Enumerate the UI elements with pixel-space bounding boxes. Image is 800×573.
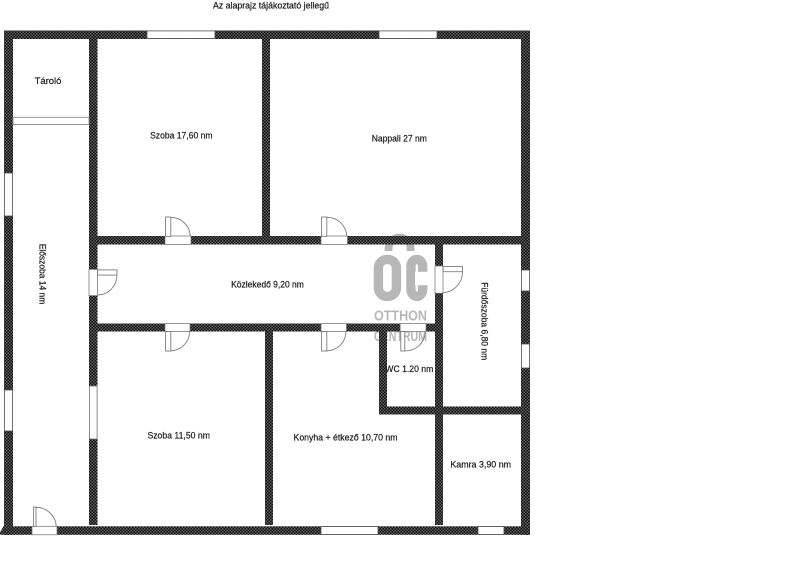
svg-text:Előszoba 14 nm: Előszoba 14 nm (37, 244, 48, 305)
svg-text:Szoba 11,50 nm: Szoba 11,50 nm (147, 431, 210, 442)
svg-text:Közlekedő 9,20 nm: Közlekedő 9,20 nm (231, 280, 304, 291)
svg-text:Kamra 3,90 nm: Kamra 3,90 nm (450, 460, 511, 471)
svg-text:Szoba 17,60 nm: Szoba 17,60 nm (150, 130, 212, 141)
svg-text:WC 1.20 nm: WC 1.20 nm (385, 364, 433, 375)
svg-text:Konyha + étkező 10,70 nm: Konyha + étkező 10,70 nm (294, 432, 398, 443)
svg-text:Tároló: Tároló (35, 76, 62, 87)
svg-text:OTTHON: OTTHON (374, 309, 427, 325)
svg-text:Fürdőszoba 6,80 nm: Fürdőszoba 6,80 nm (479, 282, 490, 360)
svg-text:Az alaprajz tájákoztató jelleg: Az alaprajz tájákoztató jellegű (213, 1, 329, 11)
svg-text:Nappali 27 nm: Nappali 27 nm (372, 133, 427, 144)
